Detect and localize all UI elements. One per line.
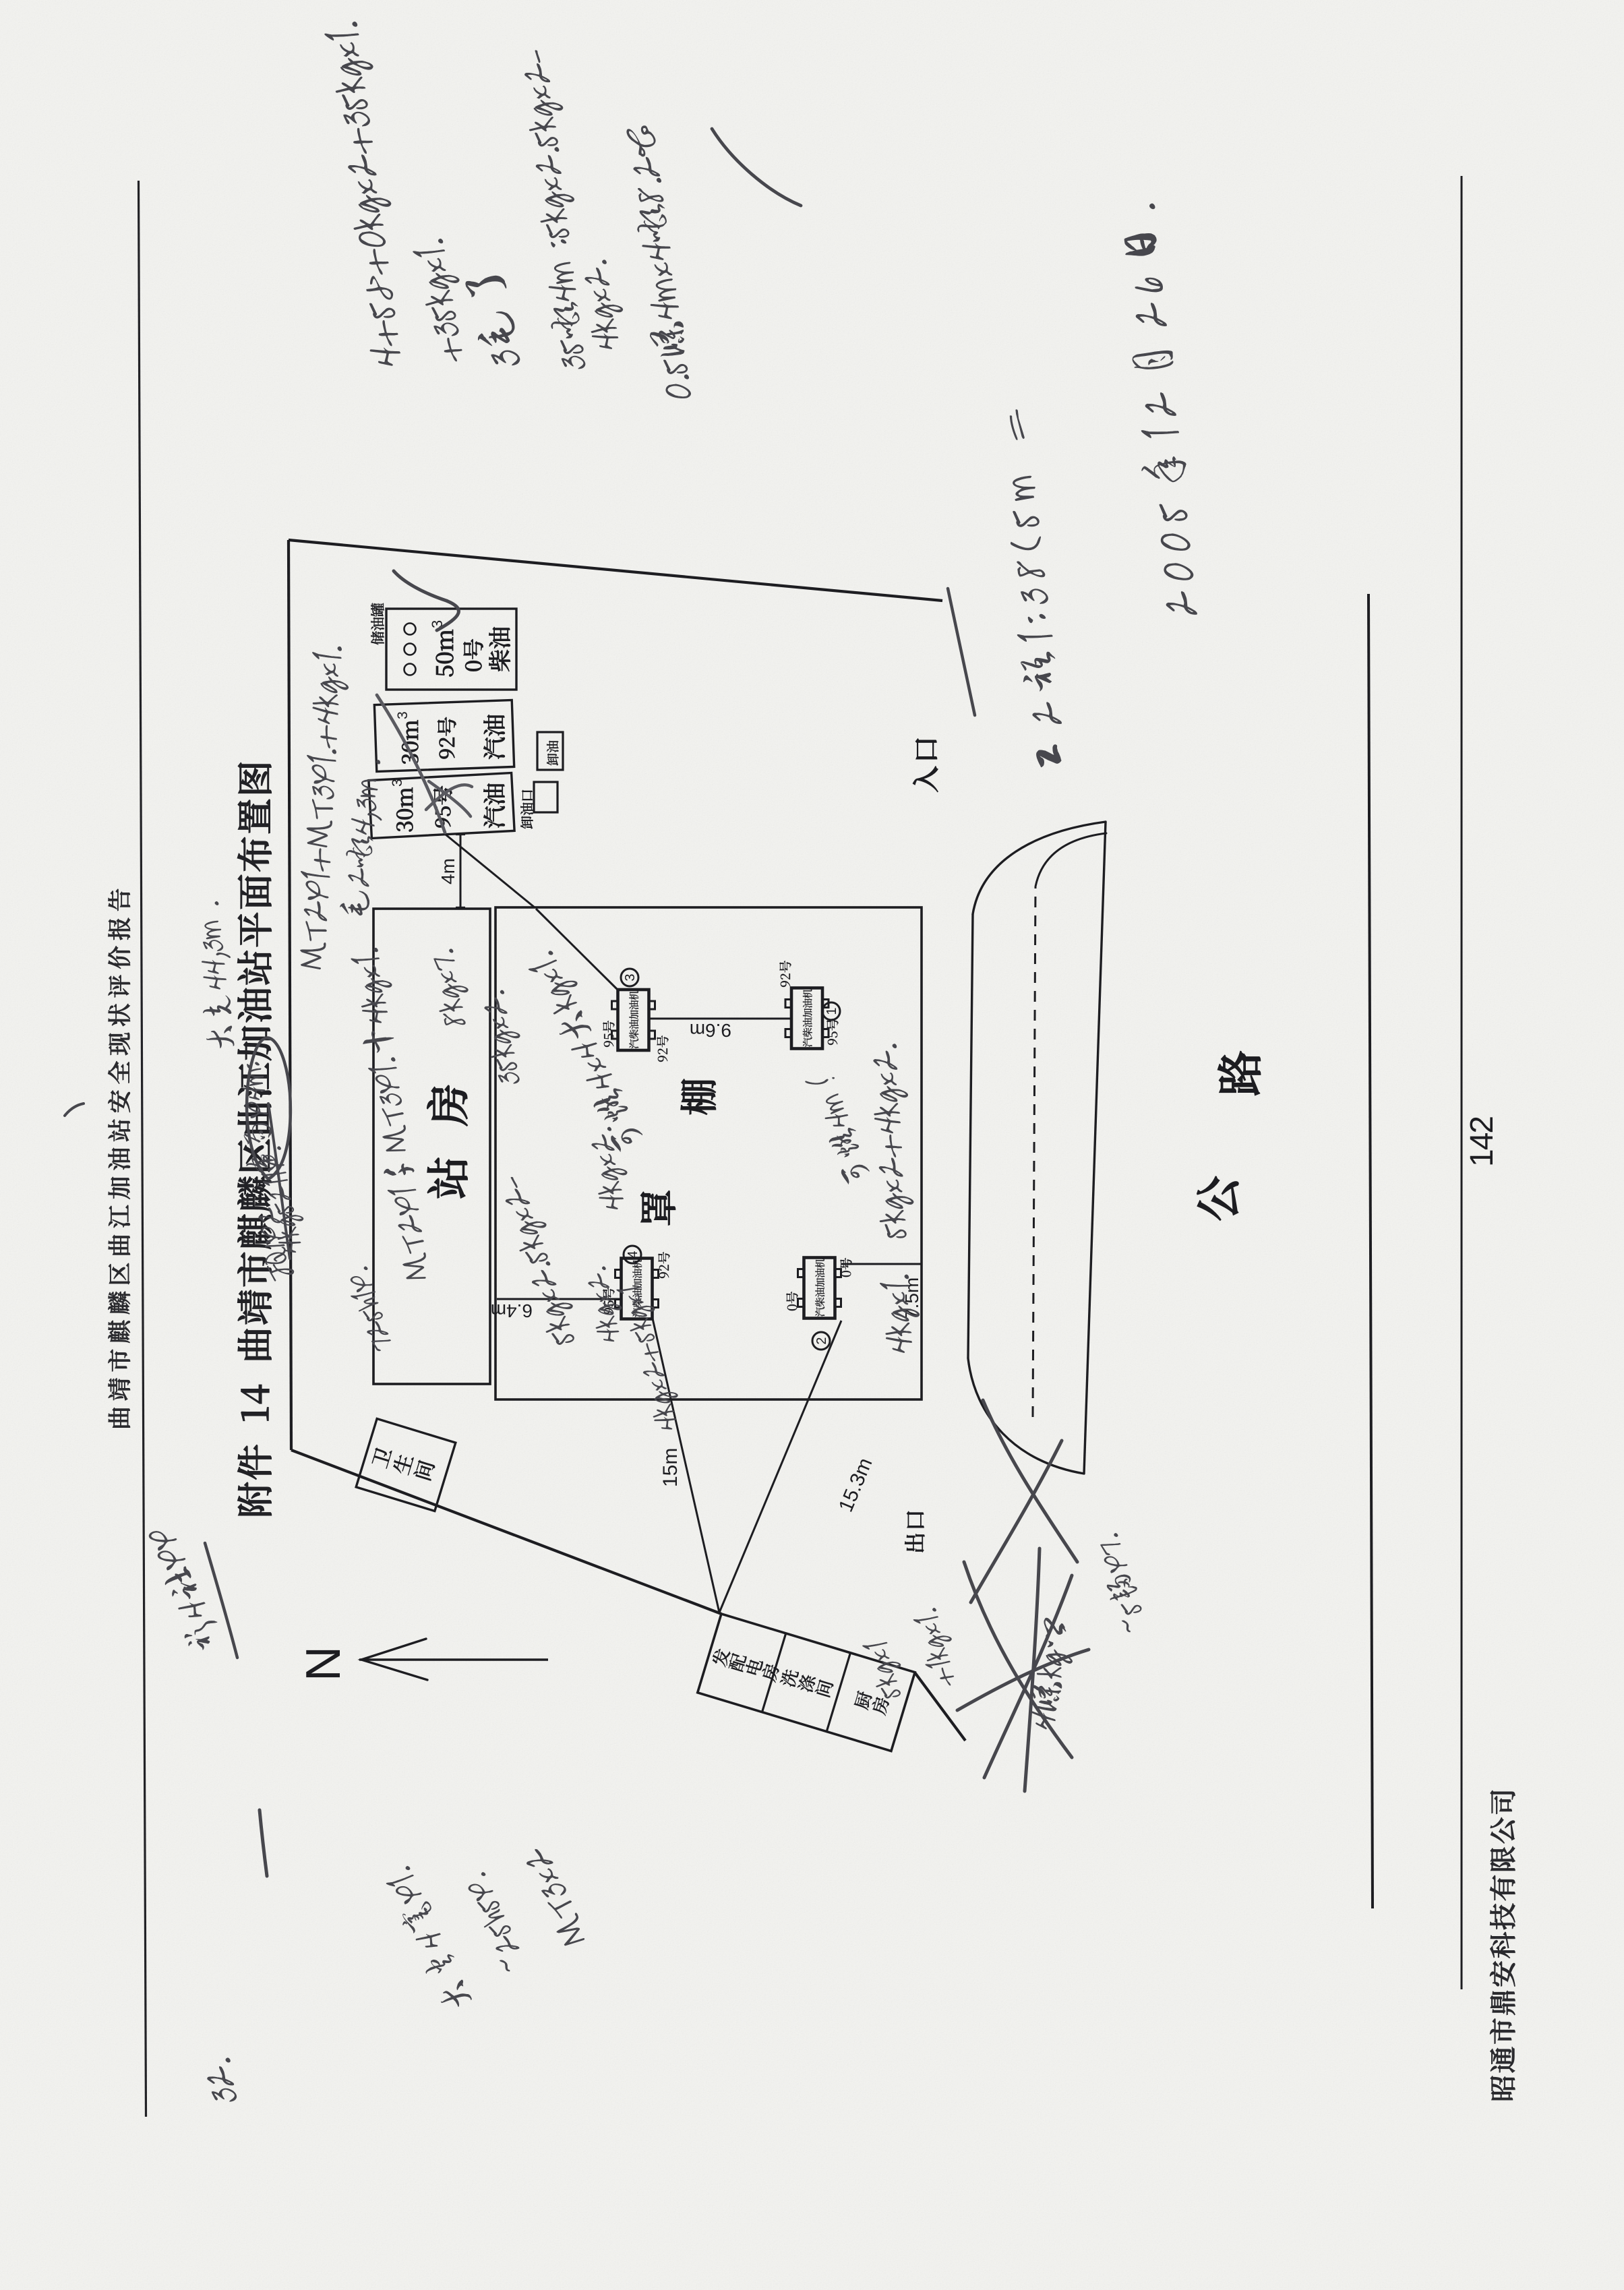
svg-text:4m: 4m [438, 858, 458, 884]
svg-text:2: 2 [814, 1337, 829, 1344]
svg-text:15m: 15m [659, 1448, 682, 1487]
svg-text:3: 3 [623, 973, 638, 981]
svg-text:9.6m: 9.6m [690, 1020, 731, 1041]
svg-text:N: N [297, 1646, 351, 1681]
svg-text:3: 3 [395, 711, 411, 719]
svg-text:4: 4 [626, 1251, 640, 1258]
svg-text:6.4m: 6.4m [491, 1300, 533, 1321]
svg-text:142: 142 [1464, 1117, 1500, 1167]
svg-text:1: 1 [824, 1007, 839, 1015]
svg-text:3: 3 [390, 779, 405, 787]
